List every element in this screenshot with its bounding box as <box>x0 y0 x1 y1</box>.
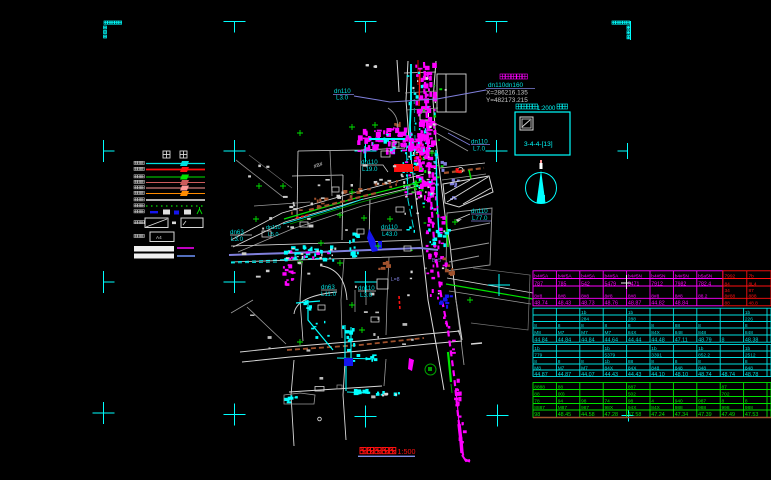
svg-text:98: 98 <box>534 412 540 418</box>
svg-text:8: 8 <box>534 323 537 329</box>
svg-text:8: 8 <box>558 359 561 365</box>
svg-text:1:2000: 1:2000 <box>537 106 556 112</box>
svg-text:b4#5N: b4#5N <box>628 274 643 280</box>
svg-text:44.58: 44.58 <box>581 412 595 418</box>
svg-text:48.87: 48.87 <box>628 301 642 307</box>
svg-text:47.49: 47.49 <box>722 412 736 418</box>
svg-text:48.74: 48.74 <box>722 372 736 378</box>
svg-text:44.64: 44.64 <box>605 337 619 343</box>
svg-text:988: 988 <box>745 405 753 411</box>
svg-text:1b: 1b <box>605 346 611 352</box>
svg-text:48.45: 48.45 <box>558 412 572 418</box>
svg-text:X=286216.135: X=286216.135 <box>486 90 528 97</box>
svg-text:702: 702 <box>722 392 730 398</box>
svg-text:1b: 1b <box>581 310 587 316</box>
svg-text:94: 94 <box>558 399 564 405</box>
svg-text:8: 8 <box>745 359 748 365</box>
svg-text:48.74: 48.74 <box>698 372 712 378</box>
svg-text:44.44: 44.44 <box>628 337 642 343</box>
svg-text:34: 34 <box>725 288 731 294</box>
svg-text:2512: 2512 <box>745 353 756 359</box>
svg-text:44.84: 44.84 <box>581 337 595 343</box>
svg-text:M87: M87 <box>558 405 568 411</box>
svg-text:88.2: 88.2 <box>698 293 708 299</box>
svg-text:M7: M7 <box>605 330 612 336</box>
svg-text:8: 8 <box>698 323 701 329</box>
svg-text:8: 8 <box>675 359 678 365</box>
svg-text:502: 502 <box>628 392 636 398</box>
svg-text:47.11: 47.11 <box>675 337 688 343</box>
svg-text:852.2: 852.2 <box>698 353 710 359</box>
svg-text:1b: 1b <box>534 346 540 352</box>
svg-text:8: 8 <box>558 323 561 329</box>
svg-text:887: 887 <box>628 385 636 391</box>
svg-text:8: 8 <box>651 359 654 365</box>
svg-text:8888: 8888 <box>534 385 545 391</box>
svg-text:940: 940 <box>675 399 683 405</box>
svg-text:5479: 5479 <box>605 282 617 288</box>
svg-text:3-4-4-[13]: 3-4-4-[13] <box>524 141 553 148</box>
svg-text:8#8: 8#8 <box>675 293 683 299</box>
svg-text:84X: 84X <box>651 405 660 411</box>
svg-text:48.84: 48.84 <box>675 301 689 307</box>
svg-text:48.76: 48.76 <box>605 301 619 307</box>
svg-text:785: 785 <box>558 282 567 288</box>
svg-text:8#8: 8#8 <box>534 293 542 299</box>
svg-text:88: 88 <box>628 359 634 365</box>
svg-text:1b: 1b <box>628 310 634 316</box>
svg-text:88: 88 <box>558 385 564 391</box>
svg-text:848: 848 <box>745 366 753 372</box>
svg-text:44.84: 44.84 <box>534 337 548 343</box>
svg-text:M8: M8 <box>534 330 541 336</box>
svg-text:1b: 1b <box>698 346 704 352</box>
svg-text:M7: M7 <box>581 366 588 372</box>
svg-text:8: 8 <box>534 359 537 365</box>
svg-text:00): 00) <box>558 392 565 398</box>
svg-text:47.28: 47.28 <box>605 412 619 418</box>
svg-text:98: 98 <box>581 399 587 405</box>
svg-text:dn110dn160: dn110dn160 <box>488 82 524 89</box>
svg-text:L5.0: L5.0 <box>268 232 279 238</box>
svg-text:8: 8 <box>745 323 748 329</box>
svg-text:1b: 1b <box>745 346 751 352</box>
svg-text:dn110: dn110 <box>266 225 281 231</box>
svg-text:98: 98 <box>628 399 634 405</box>
svg-text:848: 848 <box>675 366 683 372</box>
svg-text:L3.0: L3.0 <box>231 236 244 243</box>
svg-text:M7: M7 <box>558 366 565 372</box>
svg-text:b4#5A: b4#5A <box>534 274 549 280</box>
svg-text:8#8: 8#8 <box>605 293 613 299</box>
svg-text:988: 988 <box>675 405 683 411</box>
svg-text:98X: 98X <box>605 405 614 411</box>
svg-text:1b: 1b <box>651 346 657 352</box>
svg-text:8: 8 <box>722 337 725 343</box>
svg-text:84X: 84X <box>628 366 637 372</box>
svg-text:94X: 94X <box>628 405 637 411</box>
svg-text:84X: 84X <box>628 330 637 336</box>
svg-text:787: 787 <box>534 282 543 288</box>
svg-text:87: 87 <box>722 385 728 391</box>
svg-text:848: 848 <box>698 366 706 372</box>
svg-text:8: 8 <box>722 399 725 405</box>
svg-text:78: 78 <box>534 399 540 405</box>
svg-text:987: 987 <box>581 405 589 411</box>
svg-text:44.87: 44.87 <box>534 372 548 378</box>
svg-text:284: 284 <box>581 317 589 323</box>
svg-text:L19.0: L19.0 <box>362 166 378 173</box>
svg-text:74: 74 <box>605 399 611 405</box>
svg-text:b4#5A: b4#5A <box>558 274 573 280</box>
svg-text:779: 779 <box>534 353 542 359</box>
svg-text:4: 4 <box>651 399 654 405</box>
svg-text:47.39: 47.39 <box>698 412 712 418</box>
svg-text:3391: 3391 <box>651 353 662 359</box>
svg-text:88: 88 <box>534 392 540 398</box>
svg-text:L11.0: L11.0 <box>321 291 337 298</box>
svg-text:7b: 7b <box>749 274 755 280</box>
svg-text:M7: M7 <box>558 330 565 336</box>
svg-text:288: 288 <box>628 317 636 323</box>
svg-text:Y=482173.215: Y=482173.215 <box>486 97 528 104</box>
svg-text:1b: 1b <box>605 359 611 365</box>
svg-text:48.8: 48.8 <box>749 301 759 307</box>
svg-text:b4#5A: b4#5A <box>581 274 596 280</box>
svg-text:48.74: 48.74 <box>534 301 548 307</box>
svg-text:b4#5A: b4#5A <box>605 274 620 280</box>
svg-text:M7: M7 <box>581 330 588 336</box>
svg-text:8#8: 8#8 <box>651 293 659 299</box>
svg-text:8: 8 <box>745 399 748 405</box>
svg-text:L3.0: L3.0 <box>336 95 349 102</box>
svg-text:84X: 84X <box>651 330 660 336</box>
svg-text:888: 888 <box>749 293 757 299</box>
svg-text:44.43: 44.43 <box>628 372 642 378</box>
svg-text:7982: 7982 <box>675 282 687 288</box>
svg-text:A4: A4 <box>156 235 162 240</box>
svg-text:5379: 5379 <box>605 353 616 359</box>
svg-text:44.87: 44.87 <box>558 372 572 378</box>
svg-text:542: 542 <box>581 282 590 288</box>
svg-text:L3.0: L3.0 <box>360 292 373 299</box>
svg-text:44.48: 44.48 <box>651 337 665 343</box>
svg-text:47.24: 47.24 <box>651 412 665 418</box>
svg-text:88: 88 <box>725 301 731 307</box>
svg-text:44.82: 44.82 <box>651 301 665 307</box>
svg-text:B=5: B=5 <box>432 258 441 264</box>
svg-text:87: 87 <box>749 288 755 294</box>
svg-text:8: 8 <box>581 359 584 365</box>
svg-text:b4#5N: b4#5N <box>651 274 666 280</box>
svg-text:84: 84 <box>725 282 731 288</box>
svg-text:988: 988 <box>698 405 706 411</box>
svg-text:848: 848 <box>745 330 753 336</box>
svg-text:48.38: 48.38 <box>745 337 759 343</box>
svg-text:8L4: 8L4 <box>749 282 757 288</box>
svg-text:44.84: 44.84 <box>558 337 572 343</box>
svg-text:L43.0: L43.0 <box>382 231 398 238</box>
svg-text:84X: 84X <box>605 366 614 372</box>
svg-text:8887: 8887 <box>534 405 545 411</box>
svg-text:8#8: 8#8 <box>628 293 636 299</box>
svg-text:b5a5N: b5a5N <box>698 274 713 280</box>
svg-text:8: 8 <box>581 323 584 329</box>
svg-text:48.10: 48.10 <box>675 372 689 378</box>
svg-text:998: 998 <box>722 405 730 411</box>
svg-text:44.10: 44.10 <box>651 372 665 378</box>
svg-text:48.78: 48.78 <box>745 372 759 378</box>
svg-text:987: 987 <box>698 399 706 405</box>
svg-text:848: 848 <box>675 330 683 336</box>
svg-text:48.43: 48.43 <box>558 301 572 307</box>
svg-text:47.53: 47.53 <box>745 412 759 418</box>
svg-text:M8: M8 <box>534 366 541 372</box>
svg-text:1b: 1b <box>745 310 751 316</box>
svg-text:5471: 5471 <box>628 282 640 288</box>
svg-text:L7.0: L7.0 <box>473 146 486 153</box>
svg-text:8: 8 <box>628 323 631 329</box>
svg-text:44.43: 44.43 <box>605 372 619 378</box>
svg-text:48.79: 48.79 <box>698 337 712 343</box>
svg-text:7992: 7992 <box>725 274 736 280</box>
svg-text:848: 848 <box>651 366 659 372</box>
svg-text:8#8: 8#8 <box>581 293 589 299</box>
svg-text:226: 226 <box>745 317 753 323</box>
svg-text:8: 8 <box>605 323 608 329</box>
svg-text:782.4: 782.4 <box>698 282 711 288</box>
svg-text:48.73: 48.73 <box>581 301 595 307</box>
svg-text:L=8: L=8 <box>391 277 400 283</box>
svg-text:848: 848 <box>698 330 706 336</box>
svg-text:8: 8 <box>698 359 701 365</box>
svg-text:8#88: 8#88 <box>725 293 736 299</box>
svg-text:44.07: 44.07 <box>581 372 595 378</box>
svg-text:b4#5N: b4#5N <box>675 274 690 280</box>
svg-text:8#8: 8#8 <box>558 293 566 299</box>
svg-text:47.34: 47.34 <box>675 412 689 418</box>
svg-text:1:500: 1:500 <box>398 447 416 456</box>
svg-text:88: 88 <box>675 323 681 329</box>
svg-text:7912: 7912 <box>651 282 663 288</box>
svg-text:47.58: 47.58 <box>628 412 642 418</box>
svg-text:8: 8 <box>651 323 654 329</box>
